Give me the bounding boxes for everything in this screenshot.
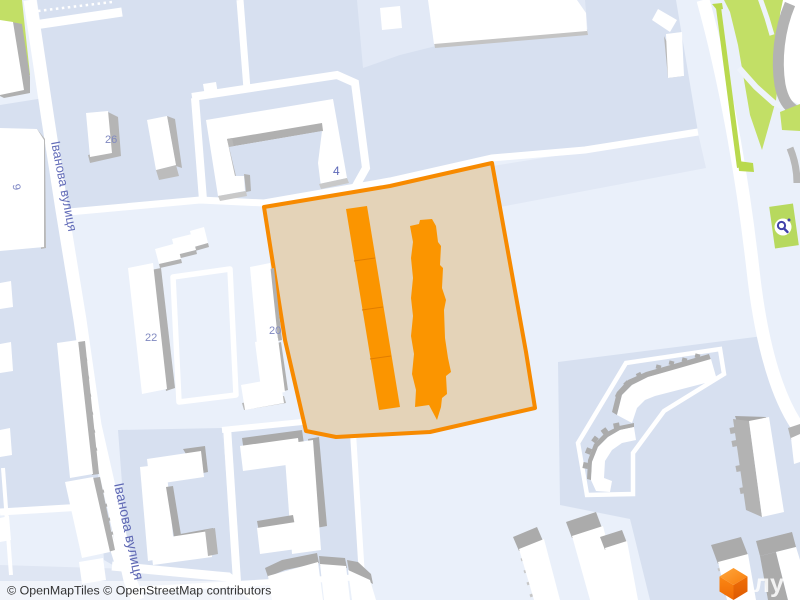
svg-text:26: 26 <box>105 134 117 146</box>
svg-text:4: 4 <box>333 164 340 178</box>
svg-text:© OpenMapTiles © OpenStreetMap: © OpenMapTiles © OpenStreetMap contribut… <box>7 584 271 598</box>
svg-text:лун: лун <box>754 570 800 598</box>
svg-text:22: 22 <box>145 332 157 344</box>
svg-text:20: 20 <box>269 325 281 337</box>
